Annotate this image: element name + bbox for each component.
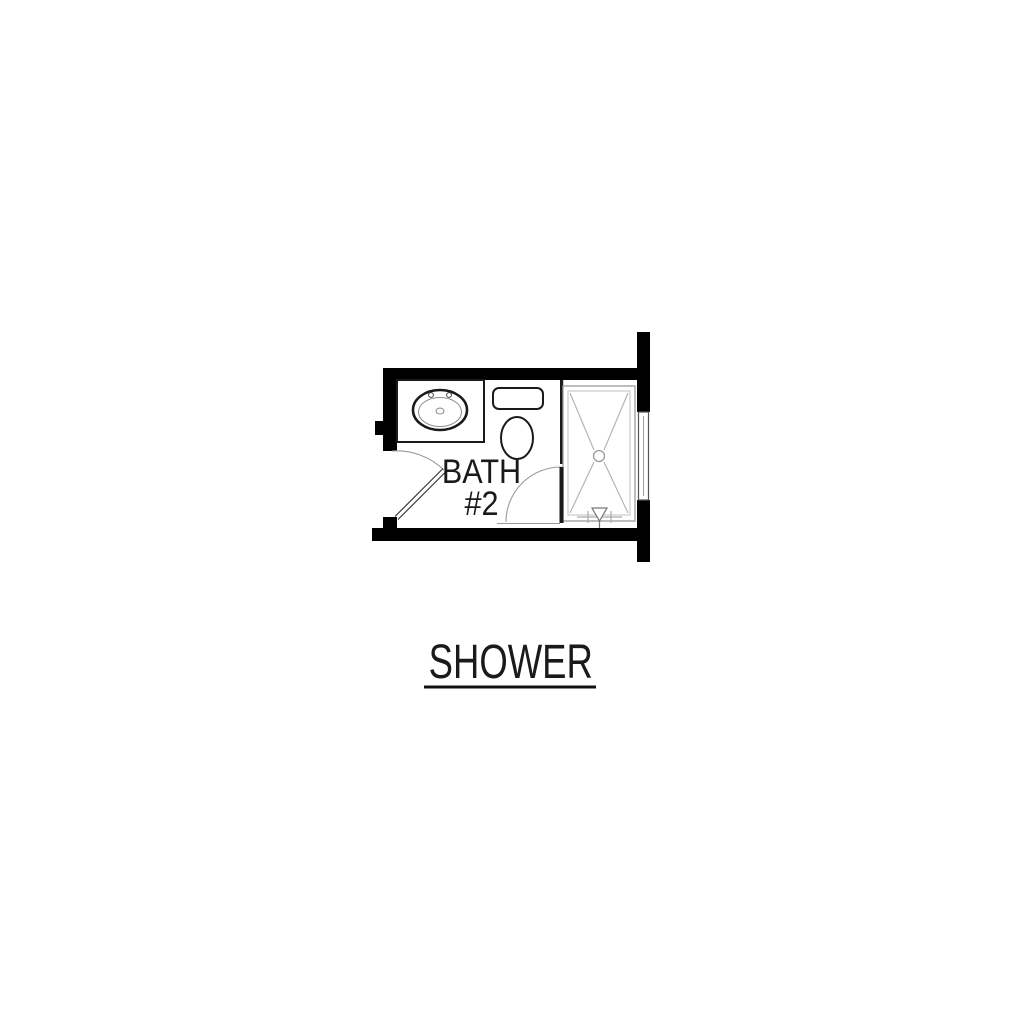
wall-top <box>383 368 637 380</box>
room-label: BATH #2 <box>442 453 521 523</box>
wall-bottom <box>372 528 650 541</box>
caption: SHOWER <box>424 635 596 689</box>
floor-plan-drawing: BATH #2 SHOWER <box>0 0 1024 1024</box>
shower-door-leaf <box>560 467 564 523</box>
shower-drain-icon <box>594 451 605 462</box>
room-label-line2: #2 <box>464 485 498 523</box>
entry-door-leaf-line2 <box>398 472 446 520</box>
shower-x-line-tl <box>570 393 594 450</box>
wall-left-stub <box>375 421 384 435</box>
shower-stall <box>560 380 635 528</box>
entry-door-leaf-line1 <box>395 469 443 517</box>
shower-x-line-br <box>604 462 628 513</box>
sink-bowl-outline <box>413 390 467 430</box>
toilet-tank <box>493 388 543 409</box>
wall-right-upper <box>637 332 650 412</box>
shower-x-line-tr <box>604 393 628 450</box>
faucet-handle-right-icon <box>447 393 452 398</box>
wall-left <box>383 368 397 451</box>
entry-door <box>392 451 446 520</box>
caption-text: SHOWER <box>429 635 593 689</box>
window <box>639 412 649 500</box>
wall-right-lower <box>637 500 650 562</box>
shower-valve-icon <box>577 508 622 528</box>
faucet-handle-left-icon <box>429 393 434 398</box>
floor-plan-canvas: BATH #2 SHOWER <box>0 0 1024 1024</box>
shower-x-line-bl <box>570 462 594 513</box>
toilet <box>493 388 543 459</box>
entry-door-swing-arc <box>392 451 444 470</box>
vanity-sink <box>397 380 484 442</box>
